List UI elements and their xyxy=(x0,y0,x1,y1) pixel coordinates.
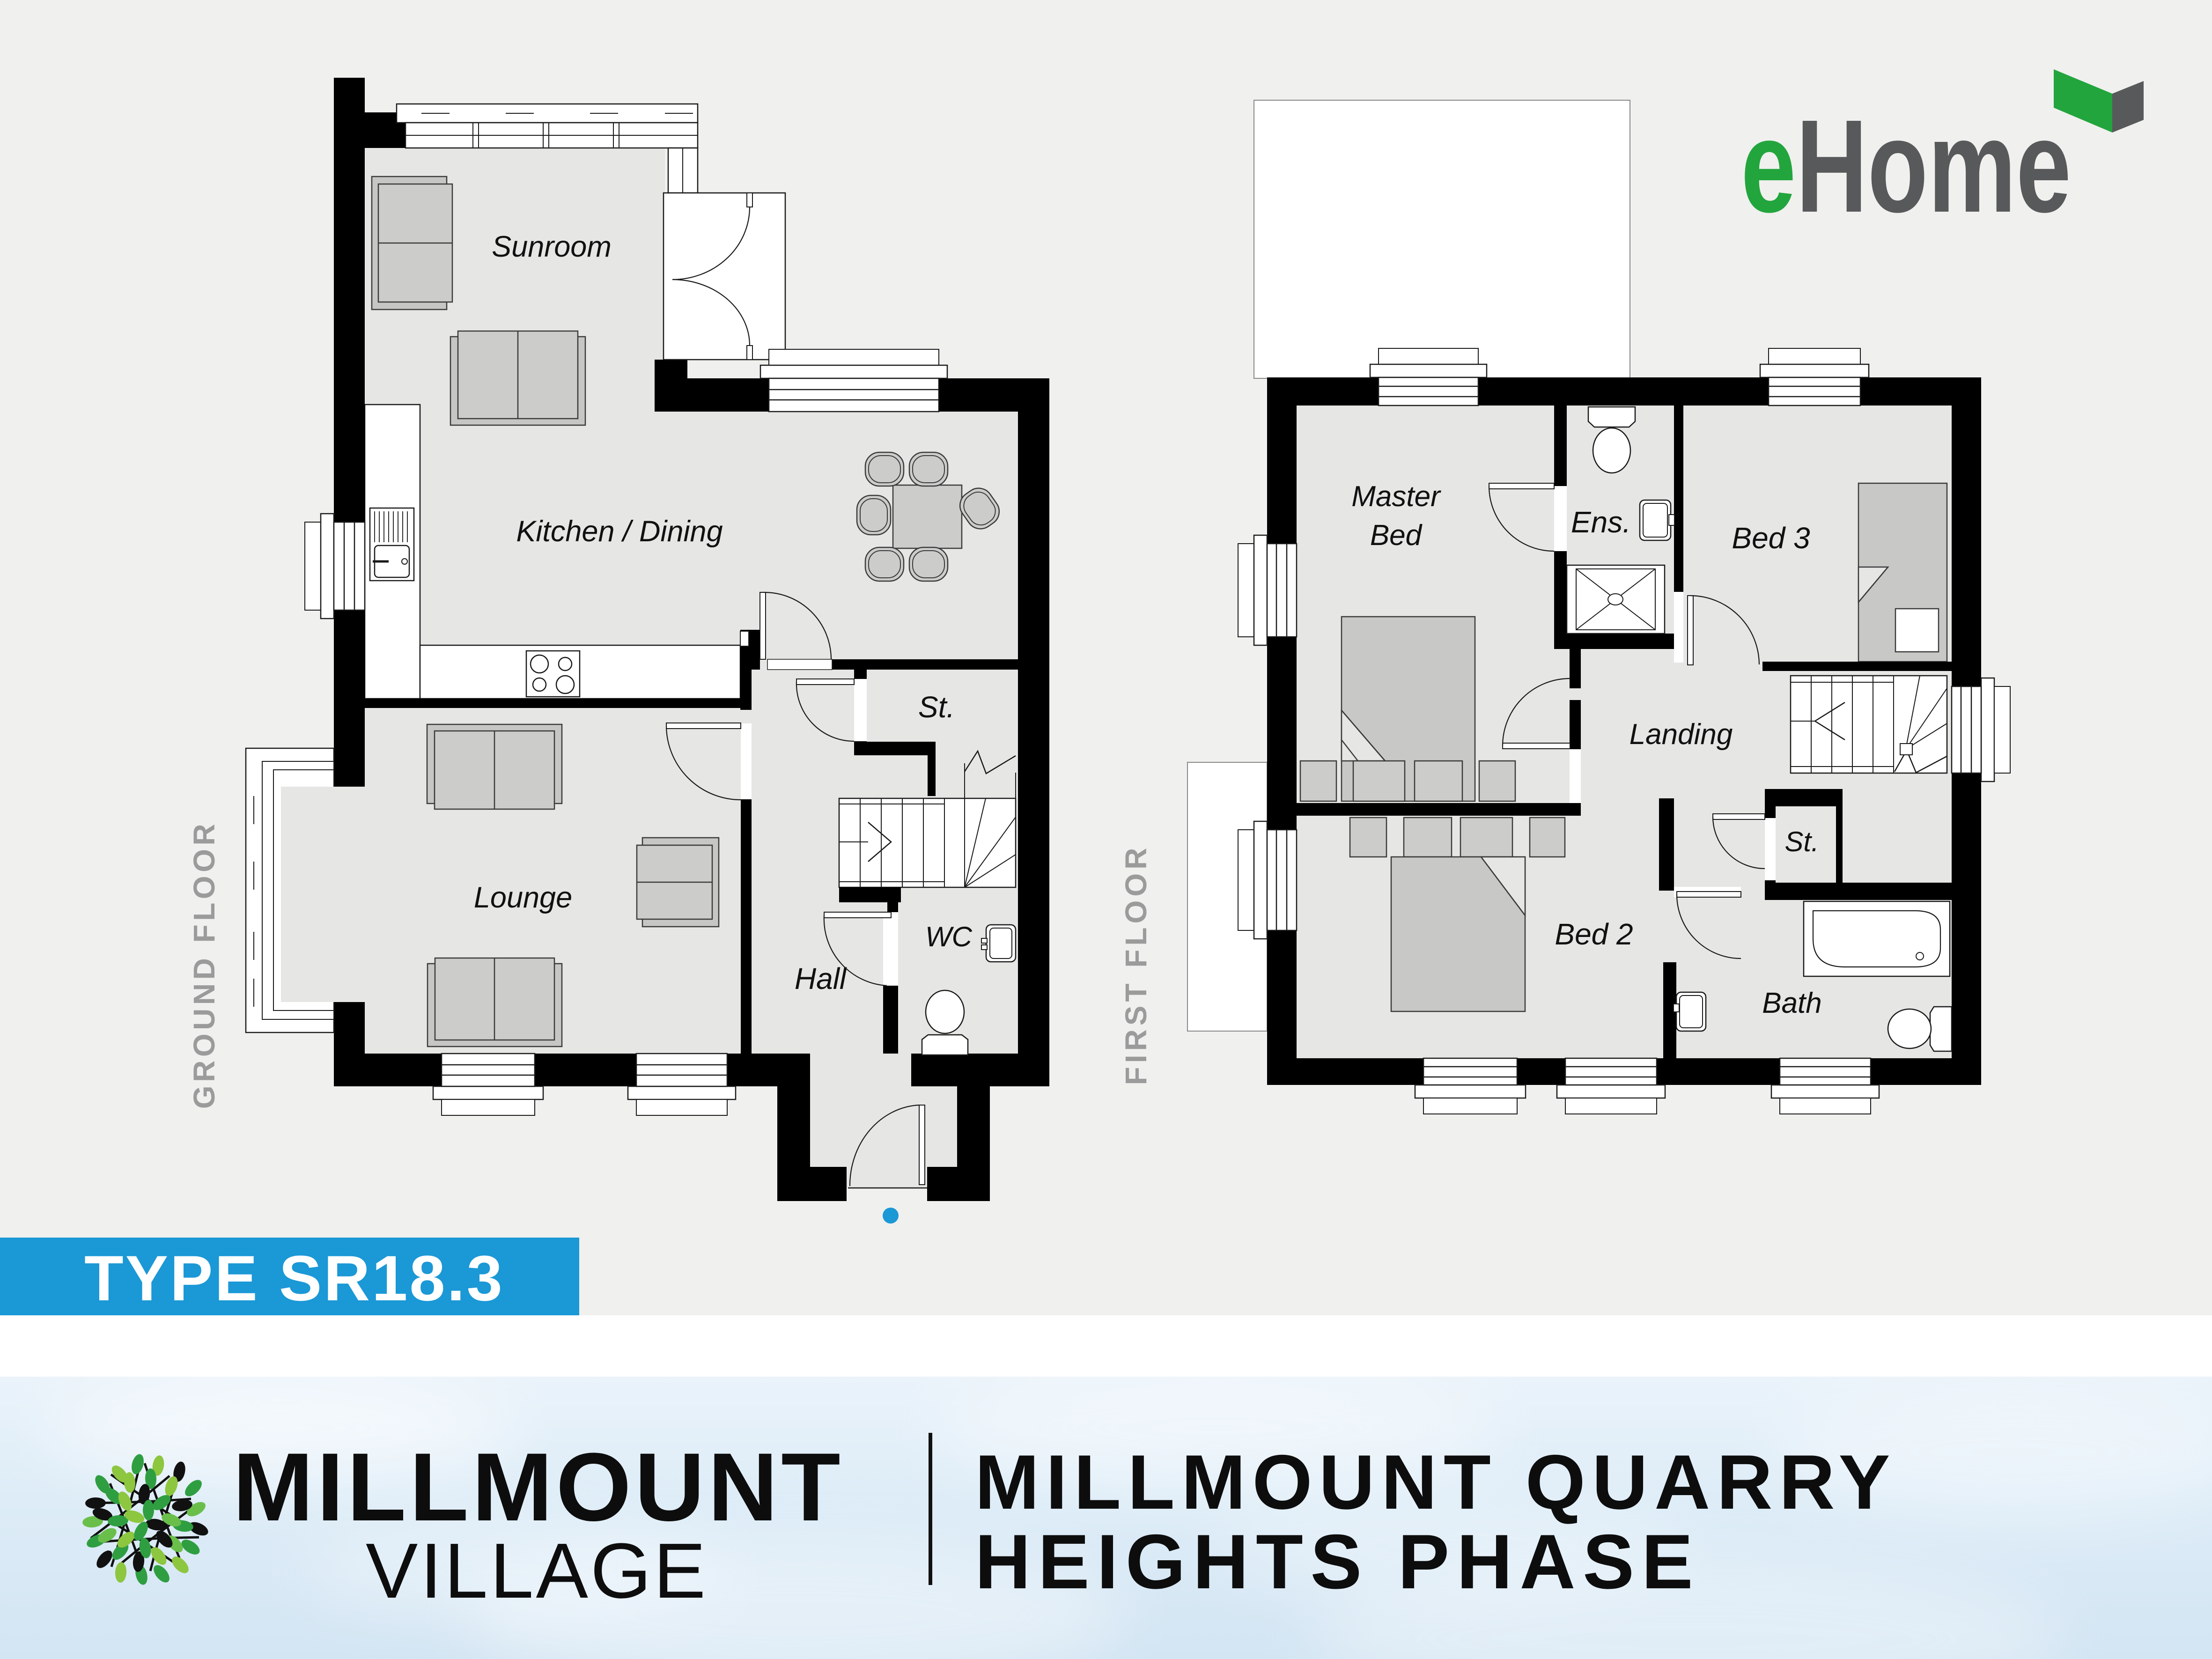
svg-text:MILLMOUNT QUARRY: MILLMOUNT QUARRY xyxy=(975,1439,1897,1525)
svg-text:FIRST FLOOR: FIRST FLOOR xyxy=(1119,844,1153,1085)
svg-text:Bed 2: Bed 2 xyxy=(1555,917,1633,951)
svg-text:Bed 3: Bed 3 xyxy=(1732,521,1810,555)
svg-text:VILLAGE: VILLAGE xyxy=(366,1527,708,1615)
svg-text:Bed: Bed xyxy=(1370,519,1423,552)
svg-text:WC: WC xyxy=(925,921,973,952)
svg-text:Lounge: Lounge xyxy=(474,881,572,914)
svg-text:Master: Master xyxy=(1351,480,1441,513)
svg-text:Landing: Landing xyxy=(1630,718,1733,751)
svg-text:Kitchen / Dining: Kitchen / Dining xyxy=(516,515,723,548)
svg-text:Sunroom: Sunroom xyxy=(492,230,612,263)
svg-text:St.: St. xyxy=(1784,826,1819,857)
svg-text:MILLMOUNT: MILLMOUNT xyxy=(233,1433,844,1541)
svg-text:eHome: eHome xyxy=(1741,92,2071,240)
svg-text:TYPE SR18.3: TYPE SR18.3 xyxy=(84,1243,504,1314)
svg-text:HEIGHTS PHASE: HEIGHTS PHASE xyxy=(975,1519,1700,1605)
svg-text:St.: St. xyxy=(918,690,955,724)
svg-text:Hall: Hall xyxy=(795,962,847,995)
svg-text:GROUND FLOOR: GROUND FLOOR xyxy=(187,820,221,1109)
svg-text:Ens.: Ens. xyxy=(1571,505,1631,539)
svg-text:Bath: Bath xyxy=(1762,987,1822,1019)
